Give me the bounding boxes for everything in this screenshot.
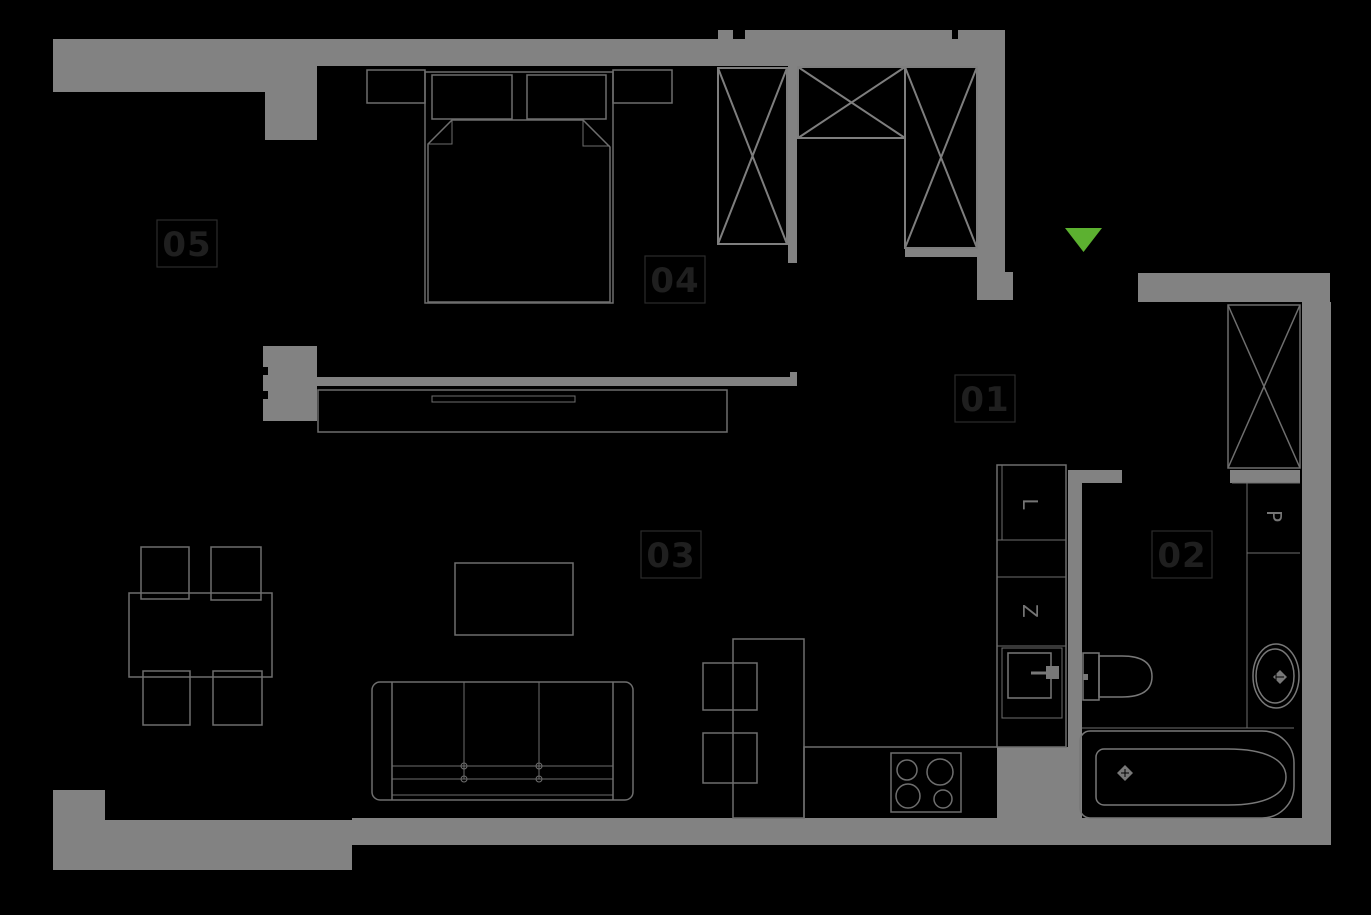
walls	[53, 30, 1331, 870]
toilet	[1083, 653, 1152, 700]
wall-bath-top-stub	[1230, 470, 1300, 483]
floor-plan-canvas: L Z P 01 02	[0, 0, 1371, 915]
bedroom-furniture	[367, 70, 672, 303]
entrance-arrow-icon	[1065, 228, 1102, 252]
room-label-balcony: 05	[157, 220, 217, 267]
wall-under-counter	[997, 747, 1068, 823]
bathtub	[1080, 731, 1294, 818]
room-label-living-room: 03	[641, 531, 701, 578]
wall-bedroom-door-stub	[905, 248, 977, 257]
wall-top-left-block	[53, 39, 265, 92]
bar-stool	[703, 733, 757, 783]
dining-table	[129, 593, 272, 677]
wall-bottom	[352, 818, 1331, 845]
room-label-bedroom: 04	[645, 256, 705, 303]
sideboard-shelf	[432, 396, 575, 402]
coffee-table	[455, 563, 573, 635]
wall-ledge-gap	[733, 30, 745, 39]
wall-bath-door-stub	[1068, 470, 1122, 483]
svg-text:01: 01	[960, 380, 1009, 420]
room-label-bathroom: 02	[1152, 531, 1212, 578]
wardrobe-left	[718, 68, 787, 244]
wall-wardrobe-partition	[788, 66, 797, 263]
wall-chimney-pier	[263, 346, 317, 421]
kitchen-counter-bottom	[804, 747, 997, 818]
wall-right	[1302, 302, 1331, 845]
sink-cabinet	[1002, 648, 1062, 718]
svg-text:03: 03	[646, 536, 695, 576]
chimney-notch	[263, 391, 268, 399]
wall-top	[317, 39, 1005, 66]
pillow-left	[432, 75, 512, 119]
pillow-right	[527, 75, 606, 119]
wardrobe-middle	[798, 67, 905, 138]
floor-plan: L Z P 01 02	[0, 0, 1371, 915]
bed-frame	[425, 72, 613, 303]
svg-text:02: 02	[1157, 536, 1206, 576]
dining-chair	[141, 547, 189, 599]
living-room-furniture	[129, 390, 727, 800]
wall-bedroom-right	[977, 66, 1005, 272]
dining-chair	[213, 671, 262, 725]
kitchen-sink	[1008, 653, 1051, 698]
dining-chair	[211, 547, 261, 600]
dishwasher-letter: Z	[1018, 604, 1042, 618]
wall-top-upper-ledge	[718, 30, 1005, 40]
wall-tv-partition-notch	[790, 372, 797, 378]
chimney-notch	[263, 367, 268, 375]
bar-stool	[703, 663, 757, 710]
room-label-hall: 01	[955, 375, 1015, 422]
fridge-letter: L	[1018, 498, 1042, 510]
wall-bottom-left-block	[53, 820, 352, 870]
sofa	[372, 682, 633, 800]
kitchen-island	[733, 639, 804, 818]
svg-text:04: 04	[650, 261, 699, 301]
hall-wardrobe	[1228, 305, 1300, 468]
wall-top-left-pier	[265, 39, 317, 140]
wall-bedroom-right-foot	[977, 272, 1013, 300]
bathroom: P	[1080, 483, 1300, 818]
svg-text:05: 05	[162, 225, 211, 265]
wardrobe-right	[905, 67, 977, 248]
nightstand-right	[613, 70, 672, 103]
nightstand-left	[367, 70, 425, 103]
bathroom-sink	[1253, 644, 1299, 708]
wall-bottom-left-notch	[53, 790, 105, 820]
wall-ledge-gap	[952, 30, 958, 39]
wall-entry-top	[1138, 273, 1330, 302]
wall-tv-partition	[317, 377, 797, 386]
dining-chair	[143, 671, 190, 725]
washing-machine-letter: P	[1262, 510, 1286, 522]
mattress	[428, 120, 610, 302]
kitchen-faucet-handle	[1046, 666, 1059, 679]
stove	[891, 753, 961, 812]
